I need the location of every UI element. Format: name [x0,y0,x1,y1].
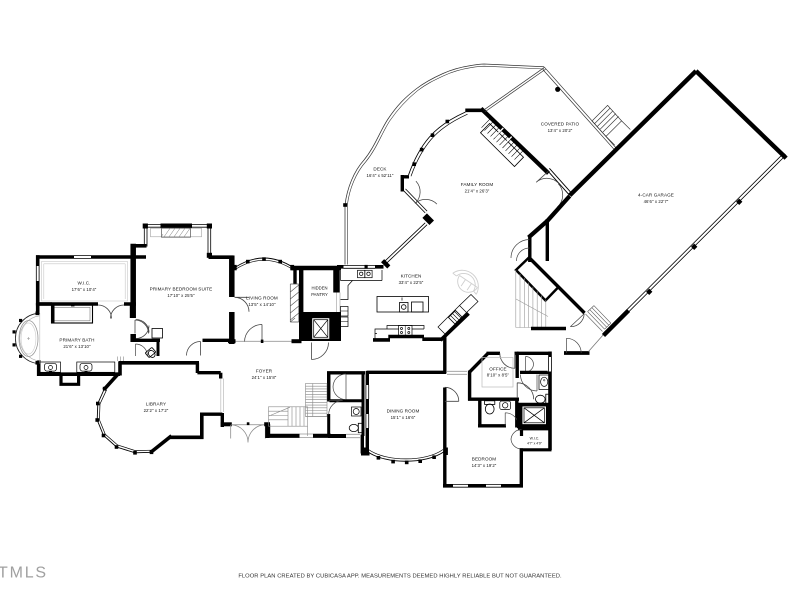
svg-text:LIBRARY: LIBRARY [146,402,166,407]
svg-text:4'7" x 4'9": 4'7" x 4'9" [527,442,543,446]
svg-text:OFFICE: OFFICE [489,367,506,372]
svg-text:13'5" x 14'10": 13'5" x 14'10" [248,302,276,307]
svg-text:33'4" x 22'5": 33'4" x 22'5" [399,280,424,285]
svg-text:DECK: DECK [373,167,387,172]
svg-text:PANTRY: PANTRY [311,292,328,297]
svg-text:13'4" x 20'2": 13'4" x 20'2" [548,128,573,133]
svg-text:16'4" x 52'11": 16'4" x 52'11" [366,173,393,178]
svg-text:21'4" x 26'3": 21'4" x 26'3" [465,189,490,194]
svg-text:14'3" x 19'2": 14'3" x 19'2" [472,463,497,468]
svg-text:BEDROOM: BEDROOM [472,457,497,462]
svg-text:LIVING ROOM: LIVING ROOM [246,296,278,301]
svg-text:FOYER: FOYER [256,369,273,374]
svg-text:KITCHEN: KITCHEN [401,274,422,279]
svg-text:COVERED PATIO: COVERED PATIO [541,122,580,127]
svg-text:17'10" x 25'5": 17'10" x 25'5" [167,293,195,298]
svg-text:W.I.C.: W.I.C. [530,437,540,441]
svg-text:TMLS: TMLS [0,565,48,582]
svg-text:17'6" x 10'4": 17'6" x 10'4" [72,287,97,292]
svg-text:15'1" x 16'6": 15'1" x 16'6" [391,415,416,420]
svg-text:DINING ROOM: DINING ROOM [387,409,420,414]
svg-text:W.I.C.: W.I.C. [77,281,90,286]
svg-text:21'6" x 13'10": 21'6" x 13'10" [63,344,91,349]
svg-text:46'6" x 22'7": 46'6" x 22'7" [644,199,669,204]
svg-text:HIDDEN: HIDDEN [311,286,327,291]
svg-text:FLOOR PLAN CREATED BY CUBICASA: FLOOR PLAN CREATED BY CUBICASA APP. MEAS… [238,573,562,579]
svg-text:PRIMARY BEDROOM SUITE: PRIMARY BEDROOM SUITE [150,287,213,292]
svg-text:22'2" x 17'2": 22'2" x 17'2" [144,408,169,413]
svg-text:FAMILY ROOM: FAMILY ROOM [461,182,494,187]
svg-text:PRIMARY BATH: PRIMARY BATH [59,338,94,343]
svg-text:8'10" x 8'5": 8'10" x 8'5" [487,373,510,378]
svg-text:24'1" x 15'8": 24'1" x 15'8" [252,375,277,380]
svg-text:4-CAR GARAGE: 4-CAR GARAGE [638,193,674,198]
